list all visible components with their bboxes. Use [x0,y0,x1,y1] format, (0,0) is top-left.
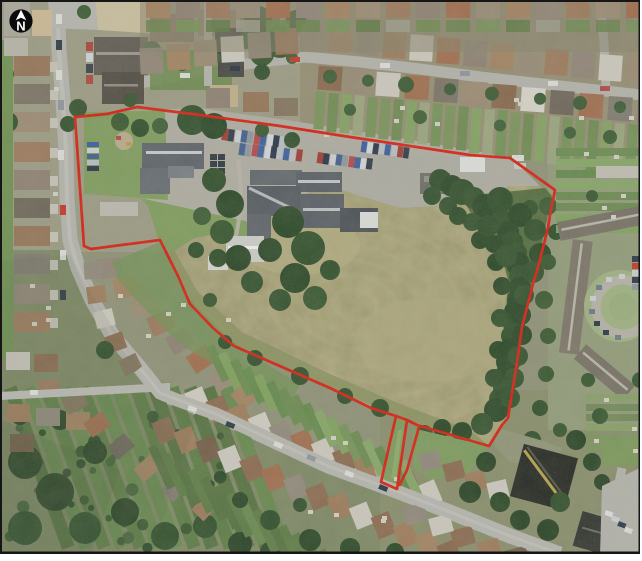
svg-text:N: N [16,19,25,34]
